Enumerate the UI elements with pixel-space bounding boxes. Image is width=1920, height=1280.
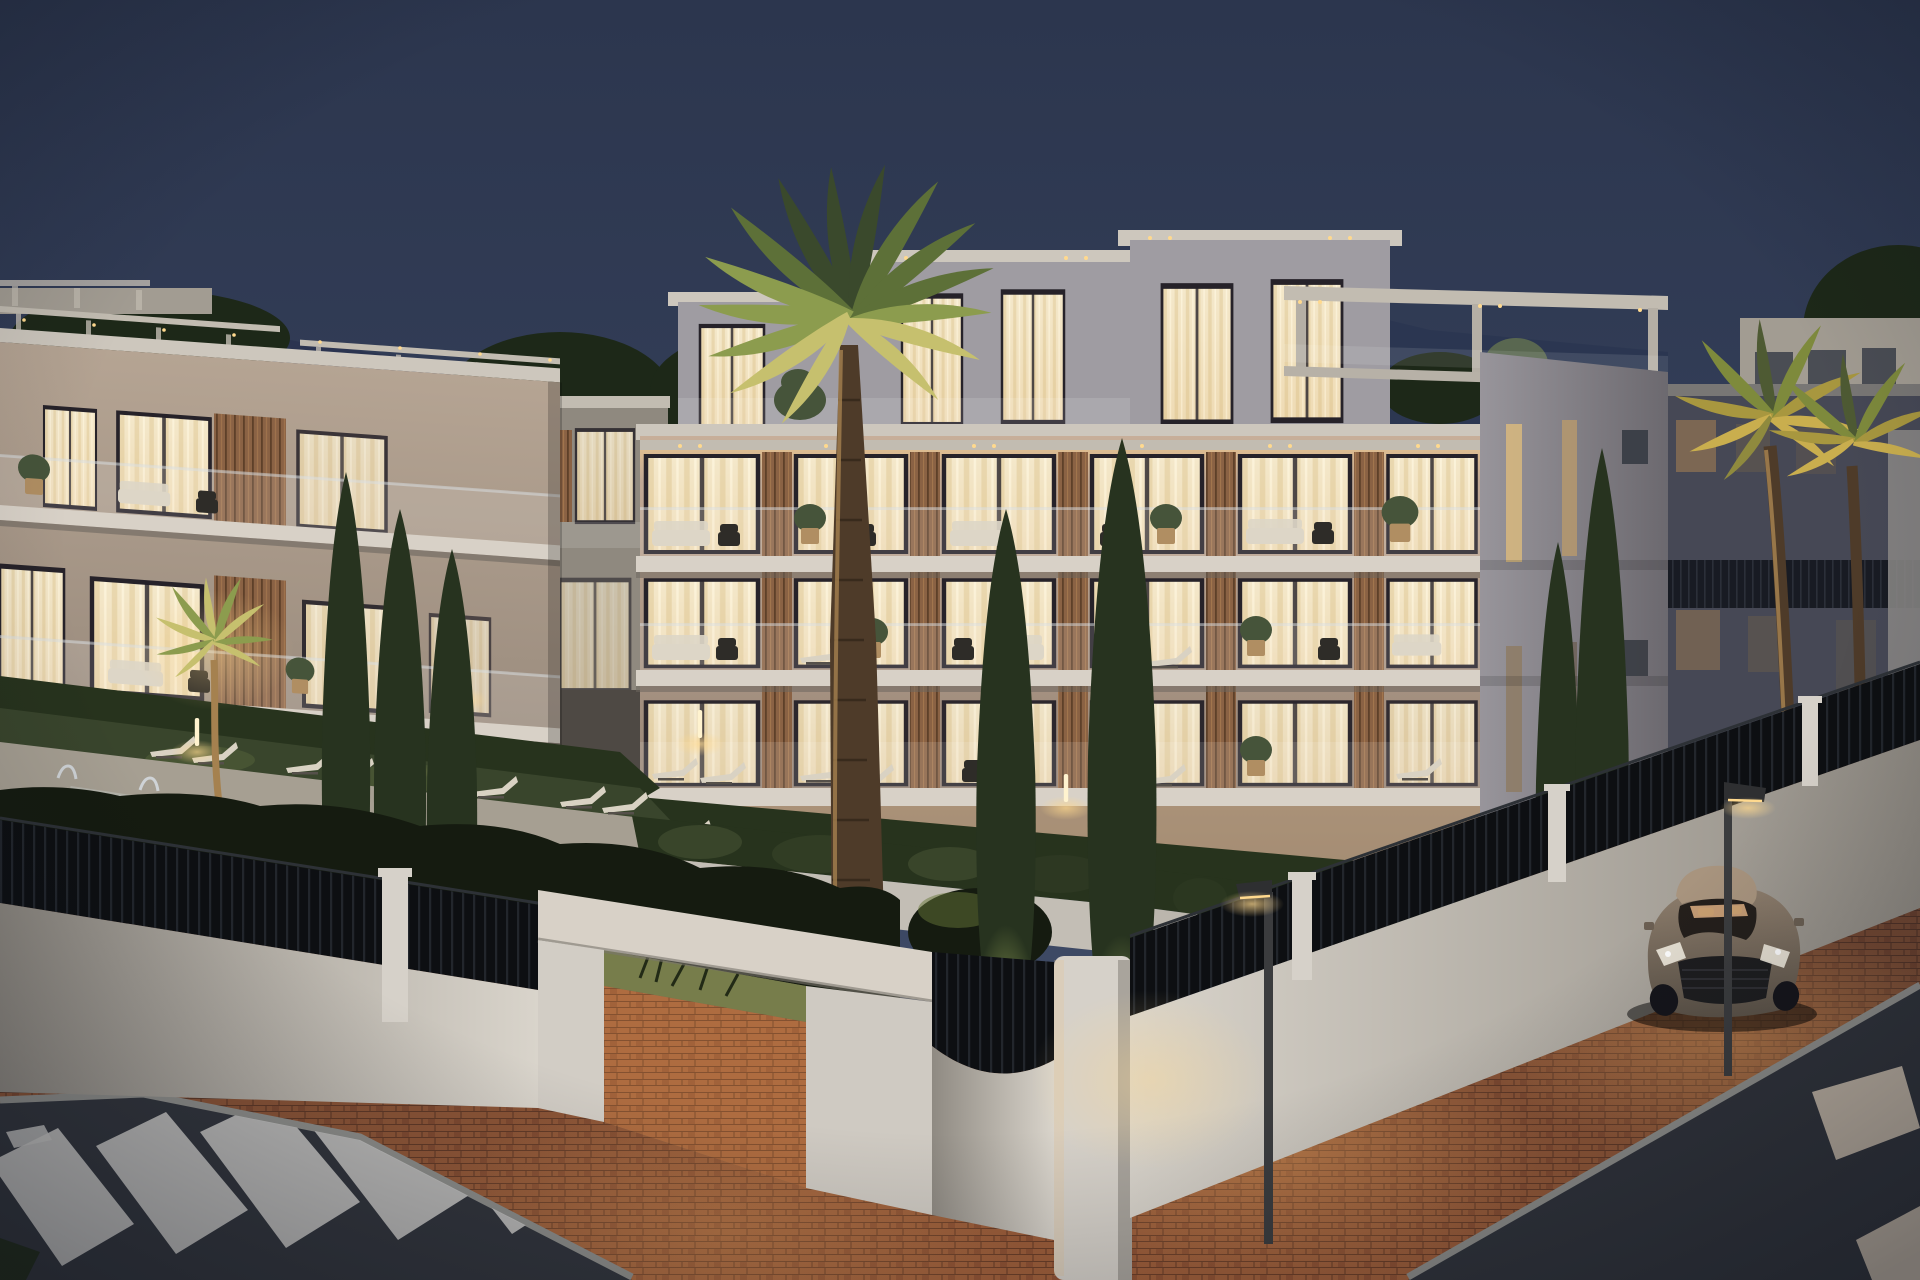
- vignette-overlay: [0, 0, 1920, 1280]
- scene: [0, 0, 1920, 1280]
- render-canvas: [0, 0, 1920, 1280]
